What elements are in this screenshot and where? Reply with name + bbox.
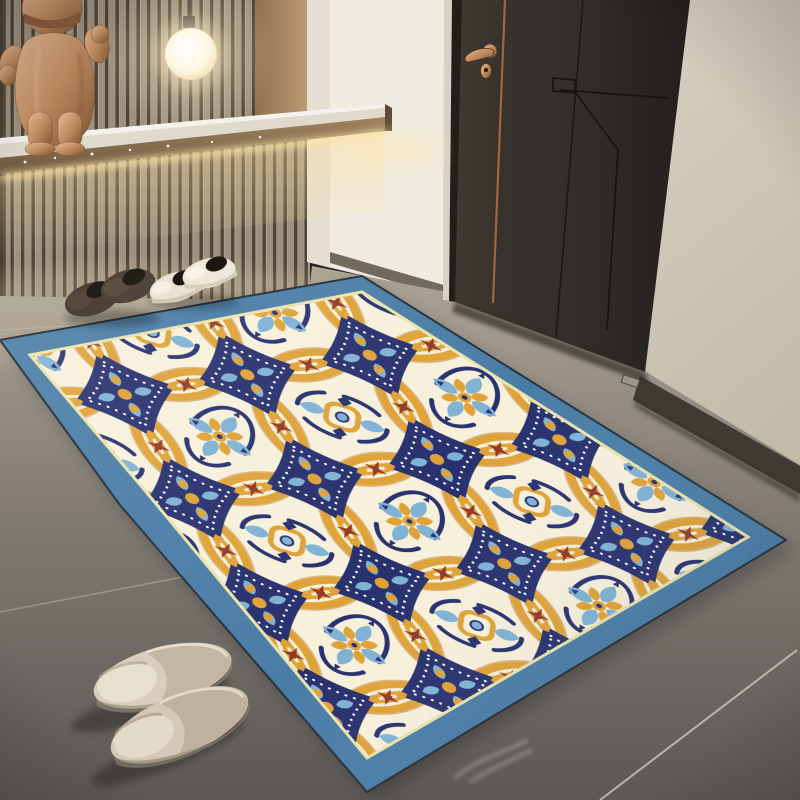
- photo-entryway-rug: [0, 0, 800, 800]
- vignette: [0, 0, 800, 800]
- scene-canvas: [0, 0, 800, 800]
